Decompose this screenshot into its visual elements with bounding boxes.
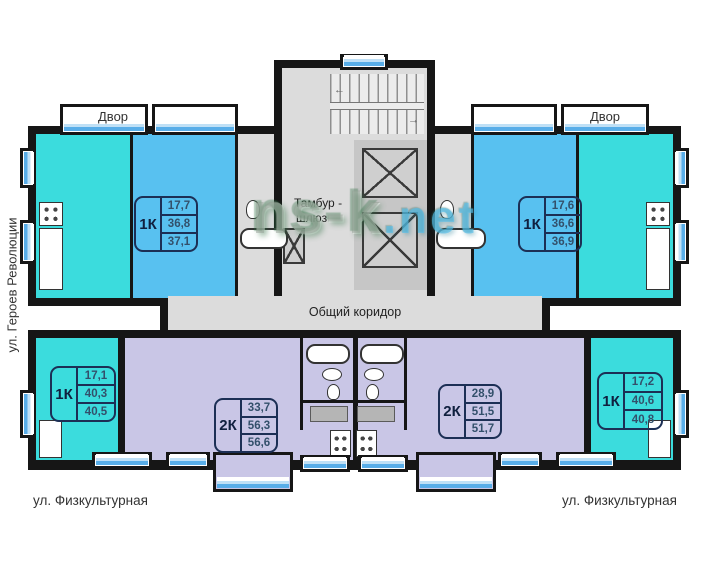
side-window	[20, 220, 36, 264]
apartment-info-upper-right: 1К 17,6 36,6 36,9	[518, 196, 582, 252]
window-glass	[475, 120, 553, 131]
bathtub-icon	[360, 344, 404, 364]
window-glass	[675, 152, 685, 184]
area-value: 36,9	[546, 234, 580, 250]
inner-wall	[300, 338, 303, 430]
window-glass	[304, 457, 346, 468]
inner-wall	[235, 215, 238, 298]
window-glass	[362, 457, 404, 468]
window-glass	[344, 55, 384, 66]
apartment-info-lower-left: 1К 17,1 40,3 40,5	[50, 366, 116, 422]
area-value: 56,3	[242, 418, 276, 436]
floor-plan: ← → 1К	[0, 0, 709, 569]
corridor-label: Общий коридор	[168, 305, 542, 319]
window-glass	[156, 120, 234, 131]
inner-wall	[130, 134, 133, 232]
street-label-left: ул. Героев Революции	[5, 218, 20, 353]
inner-wall	[576, 252, 579, 298]
apartment-info-lower-mid-left: 2К 33,7 56,3 56,6	[214, 398, 278, 453]
side-window	[673, 220, 689, 264]
area-value: 17,1	[78, 368, 114, 386]
street-label-bottom-right: ул. Физкультурная	[562, 493, 677, 508]
area-value: 17,7	[162, 198, 196, 216]
area-value: 51,5	[466, 404, 500, 422]
stove-icon	[330, 430, 351, 457]
window-glass	[24, 152, 34, 184]
toilet-icon	[440, 200, 454, 219]
side-window	[20, 148, 36, 188]
area-value: 17,6	[546, 198, 580, 216]
apartment-areas: 17,2 40,6 40,8	[623, 374, 661, 428]
stove-icon	[356, 430, 377, 457]
window-glass	[502, 454, 538, 465]
apartment-type-label: 1К	[136, 198, 160, 250]
inner-wall	[130, 252, 133, 298]
area-value: 40,6	[625, 393, 661, 412]
apartment-areas: 17,6 36,6 36,9	[544, 198, 580, 250]
area-value: 56,6	[242, 435, 276, 451]
toilet-icon	[327, 384, 340, 400]
kitchen-counter	[646, 228, 670, 290]
bottom-window	[358, 455, 408, 472]
stove-icon	[39, 202, 63, 226]
street-label-bottom-left: ул. Физкультурная	[33, 493, 148, 508]
inner-wall	[471, 134, 474, 194]
sink-icon	[364, 368, 384, 381]
stove-icon	[646, 202, 670, 226]
area-value: 40,8	[625, 411, 661, 428]
kitchen-counter	[39, 228, 63, 290]
apartment-areas: 28,9 51,5 51,7	[464, 386, 500, 437]
area-value: 36,6	[546, 216, 580, 234]
window-glass	[170, 454, 206, 465]
courtyard-label-right: Двор	[590, 109, 620, 124]
window-glass	[675, 224, 685, 260]
apartment-areas: 33,7 56,3 56,6	[240, 400, 276, 451]
bathtub-icon	[436, 228, 486, 249]
courtyard-label-left: Двор	[98, 109, 128, 124]
bathtub-icon	[306, 344, 350, 364]
stairwell-window	[340, 54, 388, 70]
elevator-shaft-1	[362, 148, 418, 198]
apartment-type-label: 1К	[52, 368, 76, 420]
window-glass	[560, 454, 612, 465]
stair-arrow-down: →	[408, 114, 419, 126]
bottom-window	[166, 452, 210, 469]
apartment-info-lower-mid-right: 2К 28,9 51,5 51,7	[438, 384, 502, 439]
vestibule-label-line1: Тамбур -	[294, 196, 342, 210]
window-glass	[420, 477, 492, 488]
area-value: 37,1	[162, 234, 196, 250]
balcony-window	[471, 104, 557, 135]
apartment-info-lower-right: 1К 17,2 40,6 40,8	[597, 372, 663, 430]
wardrobe-block	[310, 406, 348, 422]
toilet-icon	[366, 384, 379, 400]
apartment-type-label: 1К	[520, 198, 544, 250]
area-value: 36,8	[162, 216, 196, 234]
window-glass	[96, 454, 148, 465]
side-window	[673, 390, 689, 438]
window-glass	[217, 477, 289, 488]
bottom-window	[300, 455, 350, 472]
area-value: 17,2	[625, 374, 661, 393]
apartment-type-label: 1К	[599, 374, 623, 428]
lower-balcony	[213, 452, 293, 492]
balcony-window	[152, 104, 238, 135]
inner-wall	[235, 134, 238, 194]
area-value: 28,9	[466, 386, 500, 404]
window-glass	[24, 394, 34, 434]
sink-icon	[322, 368, 342, 381]
toilet-icon	[246, 200, 260, 219]
vestibule-label-line2: шлюз	[296, 211, 327, 225]
window-glass	[24, 224, 34, 260]
side-window	[673, 148, 689, 188]
apartment-type-label: 2К	[440, 386, 464, 437]
side-window	[20, 390, 36, 438]
elevator-shaft-2	[362, 212, 418, 268]
apartment-areas: 17,7 36,8 37,1	[160, 198, 196, 250]
bottom-window	[556, 452, 616, 469]
wardrobe-block	[357, 406, 395, 422]
kitchen-counter	[39, 420, 62, 458]
apartment-type-label: 2К	[216, 400, 240, 451]
area-value: 40,3	[78, 386, 114, 404]
stair-arrow-up: ←	[334, 84, 345, 96]
area-value: 51,7	[466, 421, 500, 437]
apartment-info-upper-left: 1К 17,7 36,8 37,1	[134, 196, 198, 252]
area-value: 40,5	[78, 404, 114, 420]
apartment-areas: 17,1 40,3 40,5	[76, 368, 114, 420]
bottom-window	[498, 452, 542, 469]
lower-balcony	[416, 452, 496, 492]
window-glass	[675, 394, 685, 434]
inner-wall	[300, 400, 407, 403]
inner-wall	[404, 338, 407, 430]
bottom-window	[92, 452, 152, 469]
bathtub-icon	[240, 228, 288, 249]
stair-landing	[330, 102, 424, 110]
area-value: 33,7	[242, 400, 276, 418]
